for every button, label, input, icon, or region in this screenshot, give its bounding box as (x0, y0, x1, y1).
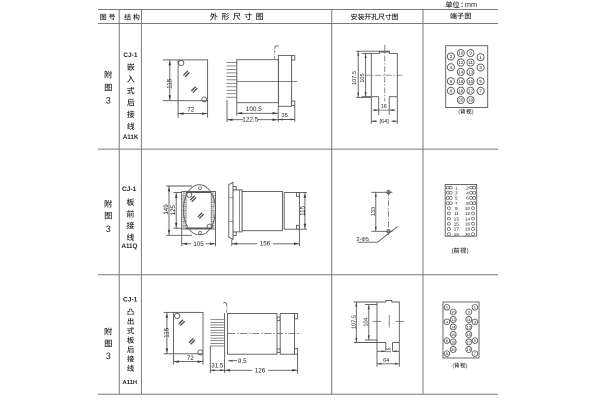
svg-text:CJ-1: CJ-1 (123, 52, 138, 59)
svg-text:20: 20 (465, 232, 471, 237)
svg-text:5: 5 (479, 79, 482, 84)
svg-text:13: 13 (468, 70, 474, 75)
svg-text:2-Φ5: 2-Φ5 (356, 237, 369, 243)
svg-text:122.5: 122.5 (242, 117, 258, 124)
svg-text:13: 13 (467, 324, 472, 329)
svg-text:CJ-1: CJ-1 (123, 297, 138, 304)
svg-text:(: ( (452, 364, 454, 370)
svg-text:1: 1 (479, 55, 482, 60)
svg-text:18: 18 (458, 88, 464, 93)
svg-text:11: 11 (468, 60, 473, 65)
svg-text:12: 12 (458, 60, 464, 65)
svg-text:14: 14 (458, 70, 464, 75)
svg-text:3: 3 (106, 224, 111, 234)
svg-text:A11H: A11H (123, 380, 138, 386)
svg-text:[64]: [64] (380, 119, 390, 125)
svg-text:19: 19 (467, 347, 472, 352)
svg-text:107.5: 107.5 (352, 315, 358, 329)
svg-text:(: ( (452, 249, 454, 255)
svg-text:17: 17 (467, 339, 472, 344)
svg-text:105: 105 (193, 241, 204, 248)
svg-text:17: 17 (468, 88, 474, 93)
svg-text:115: 115 (164, 327, 171, 338)
svg-text:A11K: A11K (123, 134, 139, 141)
svg-text:105: 105 (360, 73, 366, 82)
svg-text:14: 14 (451, 324, 456, 329)
svg-text:10: 10 (451, 309, 456, 314)
svg-text:8: 8 (450, 89, 453, 94)
svg-text:64: 64 (383, 358, 389, 364)
svg-text:115: 115 (166, 78, 173, 89)
svg-text:16: 16 (451, 332, 456, 337)
svg-text:6: 6 (450, 79, 453, 84)
svg-text:72: 72 (187, 355, 195, 362)
svg-text:16: 16 (386, 347, 392, 353)
svg-text:31.5: 31.5 (211, 363, 224, 370)
svg-text:2: 2 (450, 54, 453, 59)
svg-text:156: 156 (260, 241, 271, 248)
svg-text:12: 12 (451, 317, 456, 322)
svg-text:(: ( (458, 110, 460, 116)
svg-text:15: 15 (468, 79, 474, 84)
svg-text:16: 16 (458, 79, 464, 84)
svg-text:115: 115 (300, 205, 307, 215)
svg-text:100.5: 100.5 (246, 106, 262, 113)
svg-text:9.5: 9.5 (238, 358, 247, 365)
svg-text:): ) (467, 249, 469, 255)
svg-text:72: 72 (187, 107, 195, 114)
svg-text:20: 20 (451, 347, 456, 352)
svg-text:3: 3 (479, 65, 482, 70)
svg-text:7: 7 (479, 89, 482, 94)
svg-text:125: 125 (170, 204, 177, 215)
svg-text:9: 9 (469, 51, 472, 56)
svg-text:126: 126 (255, 367, 266, 374)
svg-text:107.5: 107.5 (352, 71, 358, 85)
svg-text:104: 104 (364, 317, 370, 326)
svg-text:CJ-1: CJ-1 (122, 186, 137, 193)
svg-text:19: 19 (468, 98, 474, 103)
svg-text:4: 4 (450, 65, 453, 70)
svg-text:20: 20 (458, 98, 464, 103)
svg-text:3: 3 (106, 351, 111, 361)
svg-text:mm: mm (465, 0, 477, 9)
svg-text:): ) (466, 364, 468, 370)
svg-text:16: 16 (381, 104, 387, 110)
svg-text:149: 149 (163, 204, 170, 215)
svg-text:): ) (472, 110, 474, 116)
svg-text:18: 18 (451, 339, 456, 344)
svg-text:10: 10 (458, 51, 464, 56)
svg-text:15: 15 (467, 332, 472, 337)
svg-text:35: 35 (281, 113, 287, 119)
svg-text:19: 19 (454, 232, 460, 237)
svg-text:3: 3 (106, 96, 111, 106)
svg-text:A11Q: A11Q (121, 243, 137, 250)
svg-text:133: 133 (371, 207, 377, 216)
